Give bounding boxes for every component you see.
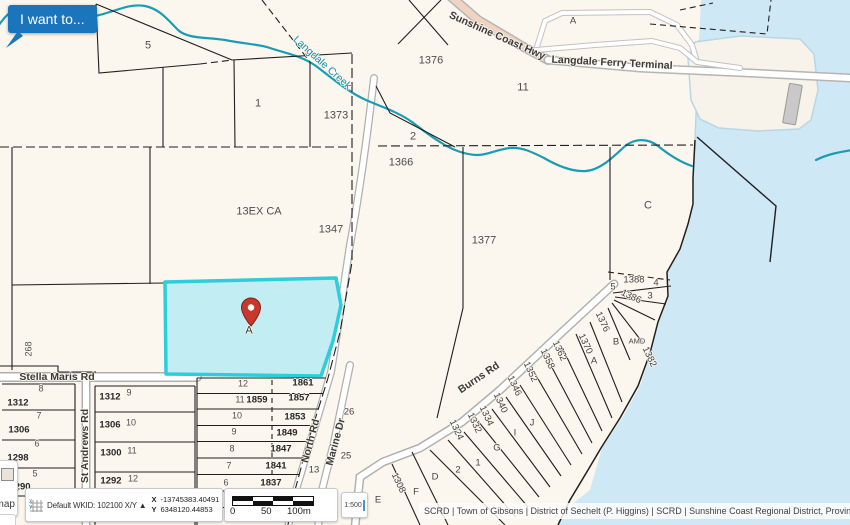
map-label: 26 <box>344 407 355 417</box>
map-label: 1857 <box>288 393 309 403</box>
basemap-label: Basemap <box>0 499 15 510</box>
map-label: 5 <box>32 470 37 479</box>
scale-mid: 50 <box>261 506 272 517</box>
map-label: 9 <box>231 428 236 437</box>
map-label: F <box>413 487 419 497</box>
scale-start: 0 <box>230 506 235 517</box>
map-label: 1841 <box>265 461 286 471</box>
map-label: 1366 <box>389 158 413 169</box>
map-label: 1859 <box>246 395 267 405</box>
map-label: 2 <box>410 132 416 143</box>
map-label: 4 <box>653 278 658 288</box>
x-coordinate: -13745383.40491 <box>161 495 220 504</box>
map-label: 12 <box>128 475 138 484</box>
map-label: St Andrews Rd <box>80 409 91 483</box>
map-label: E <box>375 495 381 505</box>
map-label: 5 <box>610 282 615 292</box>
map-label: 9 <box>126 389 131 398</box>
map-label: Stella Maris Rd <box>19 372 94 383</box>
coordinate-widget[interactable]: X Y Default WKID: 102100 X/Y ▲ X-1374538… <box>25 488 223 522</box>
basemap-icon <box>1 468 14 481</box>
map-label: G <box>493 443 500 453</box>
map-label: 1837 <box>260 478 281 488</box>
map-label: 1377 <box>472 236 496 247</box>
map-label: 1376 <box>419 56 443 67</box>
map-label: 11 <box>517 83 528 94</box>
map-label: 11 <box>235 396 244 405</box>
map-label: 1347 <box>319 225 343 236</box>
map-label: 1849 <box>276 428 297 438</box>
map-label: J <box>530 418 535 428</box>
marker-label: A <box>245 326 252 337</box>
basemap-button[interactable]: Basemap <box>0 460 18 517</box>
map-label: 10 <box>232 412 242 421</box>
map-label: 7 <box>226 462 231 471</box>
map-label: 268 <box>25 341 34 356</box>
highlighted-parcel[interactable] <box>165 278 341 376</box>
y-coordinate: 6348120.44853 <box>161 505 213 514</box>
map-label: 8 <box>229 445 234 454</box>
map-label: 1312 <box>99 392 120 402</box>
map-label: 1312 <box>7 398 28 408</box>
map-label: 3 <box>647 291 652 301</box>
map-label: 1306 <box>99 420 120 430</box>
map-label: 1 <box>255 99 261 110</box>
map-label: 8 <box>38 385 43 394</box>
map-label: 1306 <box>8 425 29 435</box>
svg-text:Y: Y <box>29 505 33 511</box>
map-label: 2 <box>455 465 460 475</box>
map-label: A <box>591 356 597 366</box>
corner-chip[interactable] <box>0 514 16 525</box>
map-label: 13EX CA <box>236 207 281 218</box>
map-label: 12 <box>238 380 248 389</box>
i-want-to-button-tail <box>6 31 26 49</box>
map-label: 1300 <box>100 448 121 458</box>
map-label: AMD <box>629 337 646 345</box>
map-label: 1373 <box>324 111 348 122</box>
map-label: 1861 <box>292 378 313 388</box>
i-want-to-button[interactable]: I want to... <box>8 5 97 33</box>
map-label: 1292 <box>100 476 121 486</box>
scale-end: 100m <box>287 506 311 517</box>
map-label: A <box>570 16 576 26</box>
text-cursor <box>363 500 365 511</box>
map-label: B <box>613 337 619 347</box>
map-viewport[interactable]: 5113731376112136613EX CA13471377CASunshi… <box>0 0 850 525</box>
map-attribution: SCRD | Town of Gibsons | District of Sec… <box>419 503 850 519</box>
scale-value: 1:500 <box>344 502 362 509</box>
map-label: 13 <box>309 465 320 475</box>
map-label: 6 <box>223 479 228 488</box>
map-label: 25 <box>341 451 352 461</box>
map-label: 7 <box>36 412 41 421</box>
map-label: 11 <box>127 447 136 456</box>
scale-input[interactable]: 1:500 <box>341 492 368 518</box>
srs-selector[interactable]: Default WKID: 102100 X/Y ▲ <box>47 501 147 510</box>
map-label: 1853 <box>284 412 305 422</box>
map-label: I <box>514 428 517 438</box>
scale-bar: 0 50 100m <box>224 488 338 522</box>
ferry-pier <box>688 36 818 131</box>
map-label: D <box>432 472 439 482</box>
scale-bar-graphic <box>232 496 314 506</box>
xy-grid-icon: X Y <box>29 498 44 513</box>
map-label: 1 <box>475 458 480 468</box>
map-label: 1388 <box>623 275 644 285</box>
map-label: 1847 <box>270 444 291 454</box>
map-label: 10 <box>126 419 136 428</box>
map-label: 5 <box>145 41 151 52</box>
cursor-coordinates: X-13745383.40491 Y6348120.44853 <box>152 495 220 515</box>
map-label: C <box>644 201 652 212</box>
map-label: 6 <box>34 440 39 449</box>
